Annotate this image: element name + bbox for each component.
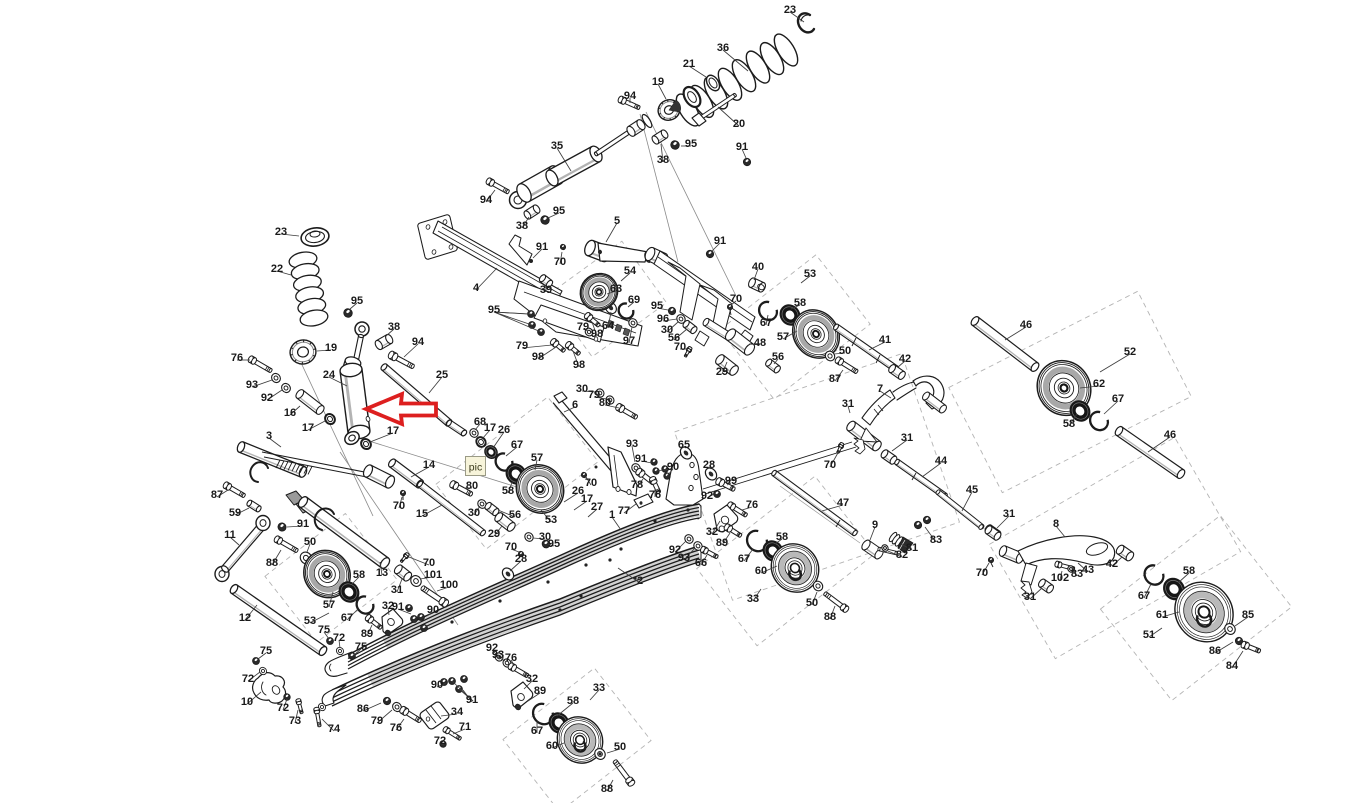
svg-text:86: 86 — [1209, 645, 1221, 657]
svg-text:56: 56 — [509, 509, 521, 521]
svg-text:36: 36 — [717, 42, 729, 54]
svg-text:61: 61 — [1156, 609, 1168, 621]
svg-text:86: 86 — [357, 703, 369, 715]
svg-text:70: 70 — [585, 477, 597, 489]
svg-text:19: 19 — [325, 342, 337, 354]
svg-text:50: 50 — [304, 536, 316, 548]
svg-text:58: 58 — [502, 485, 514, 497]
svg-text:6: 6 — [572, 399, 578, 411]
svg-text:97: 97 — [623, 335, 635, 347]
svg-text:22: 22 — [271, 263, 283, 275]
svg-text:79: 79 — [516, 340, 528, 352]
svg-text:95: 95 — [351, 295, 363, 307]
svg-text:67: 67 — [1138, 590, 1150, 602]
svg-text:33: 33 — [593, 682, 605, 694]
svg-text:90: 90 — [431, 679, 443, 691]
svg-text:64: 64 — [602, 320, 615, 332]
svg-text:70: 70 — [674, 341, 686, 353]
svg-text:30: 30 — [468, 507, 480, 519]
svg-text:30: 30 — [576, 383, 588, 395]
svg-text:58: 58 — [353, 569, 365, 581]
svg-text:46: 46 — [1164, 429, 1176, 441]
svg-text:89: 89 — [716, 537, 728, 549]
svg-text:58: 58 — [1063, 418, 1075, 430]
svg-text:71: 71 — [459, 721, 471, 733]
svg-text:67: 67 — [738, 553, 750, 565]
svg-text:67: 67 — [531, 725, 543, 737]
svg-text:26: 26 — [572, 485, 584, 497]
svg-text:50: 50 — [839, 345, 851, 357]
svg-text:76: 76 — [649, 489, 661, 501]
svg-text:21: 21 — [683, 58, 695, 70]
svg-text:94: 94 — [624, 90, 637, 102]
svg-text:43: 43 — [1082, 564, 1094, 576]
svg-text:73: 73 — [289, 715, 301, 727]
svg-text:42: 42 — [1106, 558, 1118, 570]
svg-text:102: 102 — [1051, 572, 1069, 584]
svg-text:25: 25 — [436, 369, 448, 381]
svg-text:34: 34 — [451, 706, 464, 718]
svg-text:98: 98 — [573, 359, 585, 371]
svg-text:20: 20 — [733, 118, 745, 130]
svg-text:70: 70 — [505, 541, 517, 553]
svg-text:60: 60 — [546, 740, 558, 752]
svg-text:67: 67 — [1112, 393, 1124, 405]
svg-text:99: 99 — [725, 475, 737, 487]
svg-text:91: 91 — [635, 453, 647, 465]
svg-text:94: 94 — [412, 336, 425, 348]
svg-text:72: 72 — [434, 735, 446, 747]
svg-text:95: 95 — [488, 304, 500, 316]
svg-text:47: 47 — [837, 497, 849, 509]
svg-text:15: 15 — [416, 508, 428, 520]
svg-text:53: 53 — [545, 514, 557, 526]
svg-text:79: 79 — [371, 715, 383, 727]
svg-text:44: 44 — [935, 455, 948, 467]
svg-text:76: 76 — [746, 499, 758, 511]
svg-text:72: 72 — [242, 673, 254, 685]
svg-text:76: 76 — [390, 722, 402, 734]
svg-text:70: 70 — [423, 557, 435, 569]
svg-text:8: 8 — [1053, 518, 1059, 530]
svg-text:92: 92 — [701, 490, 713, 502]
svg-text:11: 11 — [224, 529, 236, 541]
svg-text:28: 28 — [515, 553, 527, 565]
svg-text:72: 72 — [333, 632, 345, 644]
svg-text:38: 38 — [516, 220, 528, 232]
svg-text:75: 75 — [260, 645, 272, 657]
svg-text:74: 74 — [328, 723, 341, 735]
svg-text:12: 12 — [239, 612, 251, 624]
svg-text:58: 58 — [567, 695, 579, 707]
svg-text:81: 81 — [906, 542, 918, 554]
svg-text:80: 80 — [599, 397, 611, 409]
svg-text:89: 89 — [534, 685, 546, 697]
svg-text:59: 59 — [229, 507, 241, 519]
svg-text:95: 95 — [548, 538, 560, 550]
svg-text:93: 93 — [246, 379, 258, 391]
svg-text:57: 57 — [323, 599, 335, 611]
svg-text:88: 88 — [824, 611, 836, 623]
svg-text:80: 80 — [466, 480, 478, 492]
svg-text:79: 79 — [577, 321, 589, 333]
svg-text:50: 50 — [614, 741, 626, 753]
svg-text:62: 62 — [1093, 378, 1105, 390]
svg-text:57: 57 — [777, 331, 789, 343]
svg-text:35: 35 — [551, 140, 563, 152]
svg-text:39: 39 — [540, 284, 552, 296]
svg-text:70: 70 — [976, 567, 988, 579]
svg-text:40: 40 — [752, 261, 764, 273]
svg-text:46: 46 — [1020, 319, 1032, 331]
svg-text:100: 100 — [440, 579, 458, 591]
svg-text:58: 58 — [776, 531, 788, 543]
svg-text:70: 70 — [393, 500, 405, 512]
svg-text:29: 29 — [488, 528, 500, 540]
svg-text:31: 31 — [901, 432, 913, 444]
svg-text:95: 95 — [553, 205, 565, 217]
svg-text:58: 58 — [1183, 565, 1195, 577]
svg-text:53: 53 — [304, 615, 316, 627]
svg-text:83: 83 — [930, 534, 942, 546]
svg-text:26: 26 — [498, 424, 510, 436]
svg-text:76: 76 — [231, 352, 243, 364]
svg-text:72: 72 — [277, 702, 289, 714]
svg-text:89: 89 — [361, 628, 373, 640]
svg-text:17: 17 — [484, 422, 496, 434]
svg-text:14: 14 — [423, 459, 436, 471]
svg-text:17: 17 — [387, 425, 399, 437]
svg-text:92: 92 — [261, 392, 273, 404]
svg-text:69: 69 — [628, 294, 640, 306]
svg-text:3: 3 — [266, 430, 272, 442]
svg-text:48: 48 — [754, 337, 766, 349]
svg-text:13: 13 — [376, 567, 388, 579]
svg-text:23: 23 — [275, 226, 287, 238]
svg-text:24: 24 — [323, 369, 336, 381]
svg-text:38: 38 — [657, 154, 669, 166]
svg-text:91: 91 — [392, 601, 404, 613]
svg-text:63: 63 — [610, 283, 622, 295]
svg-text:31: 31 — [842, 398, 854, 410]
svg-text:91: 91 — [466, 694, 478, 706]
svg-text:57: 57 — [531, 452, 543, 464]
svg-text:7: 7 — [877, 383, 883, 395]
svg-text:4: 4 — [473, 282, 480, 294]
svg-text:38: 38 — [388, 321, 400, 333]
svg-text:88: 88 — [266, 557, 278, 569]
svg-text:67: 67 — [760, 317, 772, 329]
svg-text:87: 87 — [211, 489, 223, 501]
svg-text:90: 90 — [667, 461, 679, 473]
svg-text:93: 93 — [626, 438, 638, 450]
svg-text:33: 33 — [747, 593, 759, 605]
svg-text:50: 50 — [806, 597, 818, 609]
svg-text:70: 70 — [730, 293, 742, 305]
svg-text:31: 31 — [1024, 591, 1036, 603]
svg-text:45: 45 — [966, 484, 978, 496]
svg-text:31: 31 — [1003, 508, 1015, 520]
svg-text:67: 67 — [511, 439, 523, 451]
svg-text:70: 70 — [824, 459, 836, 471]
svg-text:2: 2 — [637, 575, 643, 587]
svg-text:94: 94 — [480, 194, 493, 206]
svg-text:93: 93 — [492, 649, 504, 661]
svg-text:76: 76 — [505, 652, 517, 664]
svg-text:98: 98 — [532, 351, 544, 363]
svg-text:87: 87 — [829, 373, 841, 385]
svg-text:91: 91 — [536, 241, 548, 253]
svg-text:90: 90 — [427, 604, 439, 616]
svg-text:85: 85 — [1242, 609, 1254, 621]
svg-text:16: 16 — [284, 407, 296, 419]
svg-text:32: 32 — [706, 526, 718, 538]
svg-text:95: 95 — [651, 300, 663, 312]
svg-text:84: 84 — [1226, 660, 1239, 672]
svg-text:9: 9 — [872, 519, 878, 531]
svg-text:91: 91 — [736, 141, 748, 153]
svg-text:29: 29 — [716, 366, 728, 378]
svg-text:60: 60 — [755, 565, 767, 577]
svg-text:pic: pic — [469, 462, 482, 474]
svg-text:65: 65 — [678, 439, 690, 451]
svg-text:31: 31 — [391, 584, 403, 596]
svg-text:23: 23 — [784, 4, 796, 16]
svg-text:41: 41 — [879, 334, 891, 346]
svg-text:53: 53 — [804, 268, 816, 280]
svg-text:5: 5 — [614, 215, 620, 227]
svg-text:56: 56 — [772, 351, 784, 363]
svg-text:75: 75 — [318, 624, 330, 636]
svg-text:93: 93 — [678, 552, 690, 564]
svg-text:19: 19 — [652, 76, 664, 88]
svg-text:75: 75 — [355, 641, 367, 653]
svg-text:91: 91 — [297, 518, 309, 530]
svg-text:32: 32 — [526, 673, 538, 685]
svg-text:66: 66 — [695, 557, 707, 569]
svg-text:78: 78 — [631, 479, 643, 491]
svg-text:95: 95 — [685, 138, 697, 150]
svg-text:88: 88 — [601, 783, 613, 795]
svg-text:1: 1 — [609, 509, 615, 521]
svg-text:51: 51 — [1143, 629, 1155, 641]
svg-text:52: 52 — [1124, 346, 1136, 358]
svg-text:77: 77 — [618, 505, 630, 517]
svg-text:58: 58 — [794, 297, 806, 309]
svg-text:10: 10 — [241, 696, 253, 708]
svg-text:70: 70 — [554, 256, 566, 268]
svg-text:54: 54 — [624, 265, 637, 277]
svg-text:28: 28 — [703, 459, 715, 471]
svg-text:17: 17 — [302, 422, 314, 434]
svg-text:67: 67 — [341, 612, 353, 624]
svg-text:42: 42 — [899, 353, 911, 365]
svg-text:91: 91 — [714, 235, 726, 247]
